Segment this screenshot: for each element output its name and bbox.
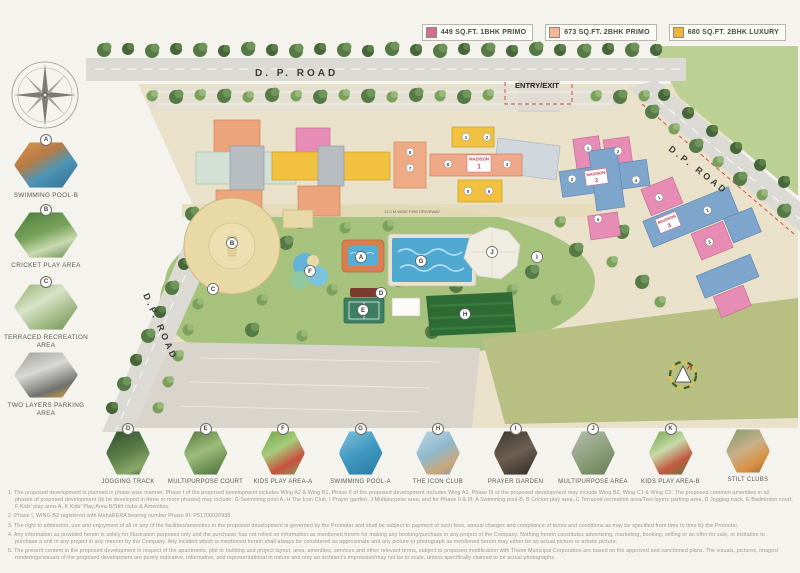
swimming-pool-a-shape <box>388 234 476 286</box>
svg-text:5: 5 <box>597 217 600 222</box>
amenity-label: TERRACED RECREATION AREA <box>3 334 89 349</box>
amenity-label: SWIMMING POOL-A <box>330 479 391 487</box>
legend-swatch-yellow <box>673 27 684 38</box>
bottom-amenities-row: D JOGGING TRACK E MULTIPURPOSE COURT F K… <box>92 423 784 487</box>
disclaimer-line: renderings/visuals of the proposed devel… <box>8 555 796 562</box>
svg-text:8: 8 <box>447 162 450 167</box>
legend-label: 449 SQ.FT. 1BHK PRIMO <box>441 29 527 36</box>
amenity-label: CRICKET PLAY AREA <box>11 262 80 270</box>
amenity-letter-badge: A <box>40 134 52 146</box>
marker-f: F <box>308 269 312 275</box>
cricket-play-area-photo <box>14 212 78 258</box>
amenity-jogging-track: D JOGGING TRACK <box>92 423 164 487</box>
svg-text:6: 6 <box>488 189 491 194</box>
road-top-label: D. P. ROAD <box>255 68 338 79</box>
amenity-cricket-play-area: B CRICKET PLAY AREA <box>0 204 92 270</box>
legend-swatch-pink <box>426 27 437 38</box>
disclaimer-line: 3. The right to admission, use and enjoy… <box>8 523 796 530</box>
madison-1-name: MADISON <box>469 157 489 162</box>
legend-label: 680 SQ.FT. 2BHK LUXURY <box>688 29 779 36</box>
amenity-label: MULTIPURPOSE AREA <box>558 479 628 487</box>
disclaimer-line: purchase a unit in any project in any ma… <box>8 539 796 546</box>
amenity-stilt-clubs: STILT CLUBS <box>712 423 784 487</box>
multipurpose-court-photo <box>184 431 228 475</box>
jogging-track-photo <box>106 431 150 475</box>
amenity-kids-play-area-a: F KIDS PLAY AREA-A <box>247 423 319 487</box>
amenity-letter-badge: E <box>200 423 212 435</box>
amenity-swimming-pool-a: G SWIMMING POOL-A <box>325 423 397 487</box>
amenity-letter-badge: J <box>587 423 599 435</box>
compass-rose-icon <box>8 56 82 139</box>
amenity-terraced-recreation: C TERRACED RECREATION AREA <box>0 276 92 349</box>
amenity-letter-badge: B <box>40 204 52 216</box>
marker-b: B <box>230 241 235 247</box>
disclaimer-line: phases of proposed development (to be de… <box>8 497 796 504</box>
svg-text:1: 1 <box>587 146 590 151</box>
two-layers-parking-photo <box>14 352 78 398</box>
marker-g: G <box>419 259 424 265</box>
club-pavilion <box>392 298 420 316</box>
amenity-label: SWIMMING POOL-B <box>14 192 79 200</box>
unit-type-legend: 449 SQ.FT. 1BHK PRIMO 673 SQ.FT. 2BHK PR… <box>422 24 786 41</box>
amenity-letter-badge: G <box>355 423 367 435</box>
amenity-prayer-garden: I PRAYER GARDEN <box>480 423 552 487</box>
marker-j: J <box>490 250 493 256</box>
disclaimer-line: 1. The proposed development is planned i… <box>8 490 796 497</box>
prayer-garden-photo <box>494 431 538 475</box>
stilt-clubs-photo <box>726 429 770 473</box>
swimming-pool-a-photo <box>339 431 383 475</box>
swimming-pool-b-photo <box>14 142 78 188</box>
amenity-label: JOGGING TRACK <box>101 479 154 487</box>
marker-e: E <box>361 308 365 314</box>
amenity-label: TWO LAYERS PARKING AREA <box>3 402 89 417</box>
amenity-letter-badge: K <box>665 423 677 435</box>
legend-item-2bhk-primo: 673 SQ.FT. 2BHK PRIMO <box>545 24 657 41</box>
amenity-letter-badge: I <box>510 423 522 435</box>
amenity-swimming-pool-b: A SWIMMING POOL-B <box>0 134 92 200</box>
svg-text:7: 7 <box>409 166 412 171</box>
kids-play-area-a-photo <box>261 431 305 475</box>
amenity-multipurpose-court: E MULTIPURPOSE COURT <box>170 423 242 487</box>
svg-text:3: 3 <box>506 162 509 167</box>
marker-a: A <box>359 255 364 261</box>
amenity-label: PRAYER GARDEN <box>488 479 543 487</box>
terraced-recreation-photo <box>14 284 78 330</box>
legend-item-2bhk-luxury: 680 SQ.FT. 2BHK LUXURY <box>669 24 786 41</box>
site-plan-page: MADISON 1 MADISON 2 MADISON <box>0 0 800 573</box>
svg-text:8: 8 <box>409 150 412 155</box>
marker-h: H <box>463 312 467 318</box>
entry-exit-label: ENTRY/EXIT <box>515 81 559 90</box>
marker-c: C <box>211 287 216 293</box>
amenity-letter-badge: H <box>432 423 444 435</box>
master-plan-map: MADISON 1 MADISON 2 MADISON <box>0 0 800 435</box>
amenity-letter-badge: F <box>277 423 289 435</box>
legend-label: 673 SQ.FT. 2BHK PRIMO <box>564 29 650 36</box>
svg-text:1: 1 <box>465 135 468 140</box>
marker-d: D <box>379 291 384 297</box>
disclaimer-block: 1. The proposed development is planned i… <box>8 490 796 562</box>
amenity-letter-badge: D <box>122 423 134 435</box>
icon-club-lawn <box>426 292 516 336</box>
track-strip <box>350 288 378 297</box>
kids-play-area-b-photo <box>649 431 693 475</box>
amenity-letter-badge: C <box>40 276 52 288</box>
svg-text:5: 5 <box>467 189 470 194</box>
fire-driveway-label: 12.0 M WIDE FIRE DRIVEWAY <box>384 209 440 214</box>
disclaimer-line: 4. Any information as provided herein is… <box>8 532 796 539</box>
svg-text:4: 4 <box>635 178 638 183</box>
svg-text:3: 3 <box>571 177 574 182</box>
amenity-kids-play-area-b: K KIDS PLAY AREA-B <box>635 423 707 487</box>
svg-text:2: 2 <box>617 149 620 154</box>
legend-item-1bhk-primo: 449 SQ.FT. 1BHK PRIMO <box>422 24 534 41</box>
amenity-the-icon-club: H THE ICON CLUB <box>402 423 474 487</box>
amenity-label: THE ICON CLUB <box>413 479 463 487</box>
amenity-label: MULTIPURPOSE COURT <box>168 479 243 487</box>
amenity-label: KIDS PLAY AREA-B <box>641 479 700 487</box>
disclaimer-line: F Kids' play area-A, K Kids' Play Area-B… <box>8 504 796 511</box>
amenity-multipurpose-area: J MULTIPURPOSE AREA <box>557 423 629 487</box>
disclaimer-line: 5. The present content in the proposed d… <box>8 548 796 555</box>
court-pad <box>283 210 313 228</box>
disclaimer-line: 2. Phase I, WING B2 registered with Maha… <box>8 513 796 520</box>
multipurpose-area-photo <box>571 431 615 475</box>
amenity-label: STILT CLUBS <box>728 477 769 485</box>
amenity-label: KIDS PLAY AREA-A <box>254 479 313 487</box>
legend-swatch-peach <box>549 27 560 38</box>
svg-text:2: 2 <box>486 135 489 140</box>
amenity-two-layers-parking: TWO LAYERS PARKING AREA <box>0 352 92 417</box>
the-icon-club-photo <box>416 431 460 475</box>
